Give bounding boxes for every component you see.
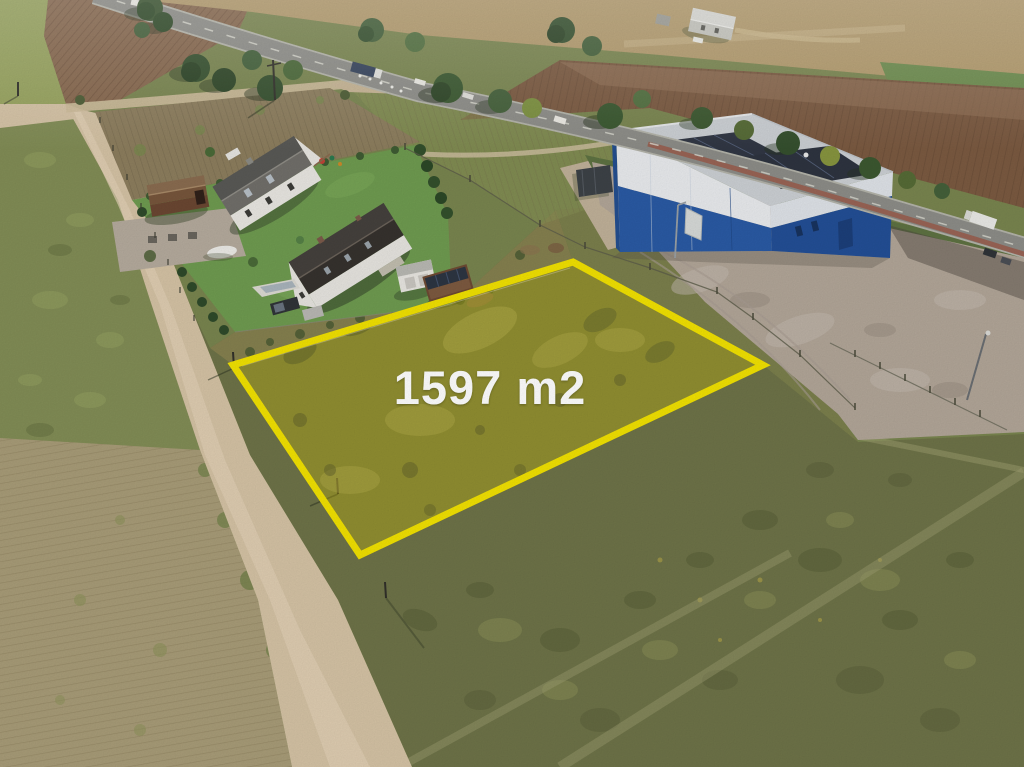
aerial-photo: 1597 m2 (0, 0, 1024, 767)
photo-grain (0, 0, 1024, 767)
aerial-photo-canvas: 1597 m2 (0, 0, 1024, 767)
